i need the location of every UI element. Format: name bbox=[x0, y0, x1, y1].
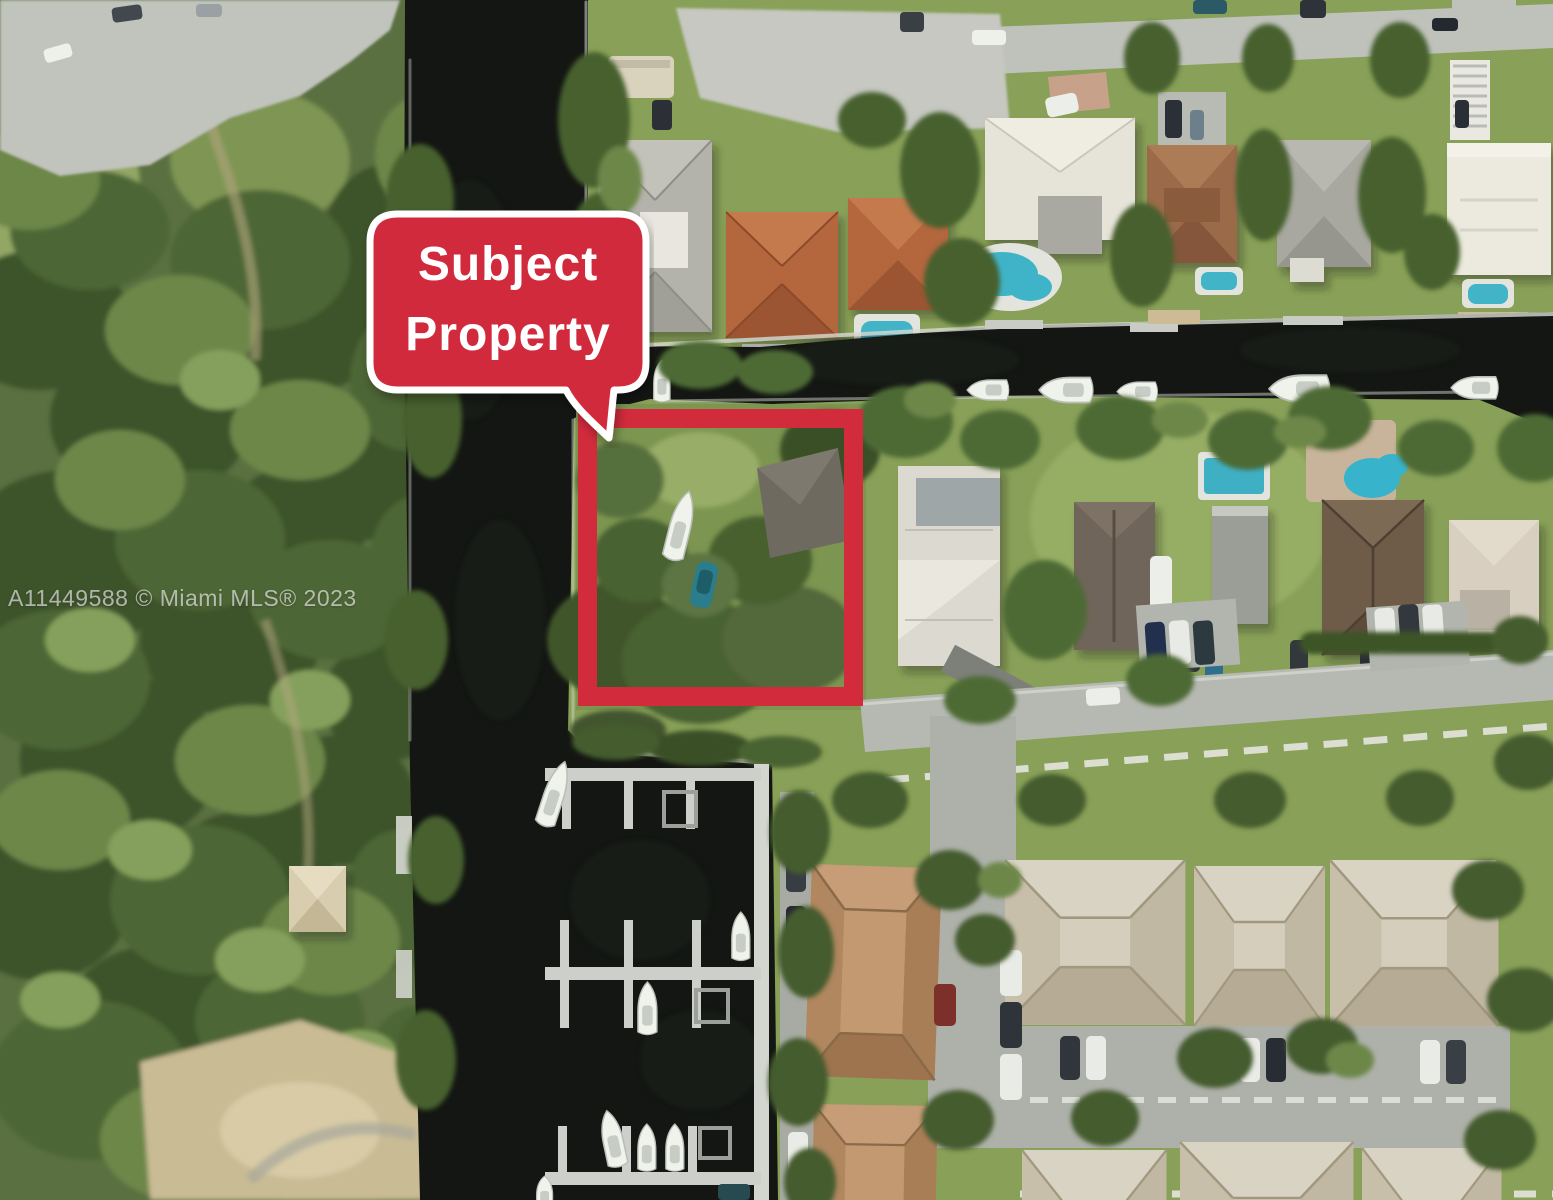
gazebo-hut bbox=[289, 866, 346, 932]
car bbox=[1455, 100, 1469, 128]
callout-line1: Subject bbox=[372, 230, 644, 300]
townhouse-roof bbox=[1005, 860, 1185, 1025]
house-cream bbox=[985, 118, 1135, 254]
house-gray2 bbox=[1277, 140, 1371, 282]
mls-watermark: A11449588 © Miami MLS® 2023 bbox=[8, 585, 357, 612]
car bbox=[196, 4, 222, 17]
callout-line2: Property bbox=[372, 300, 644, 370]
townhouse-roof bbox=[1194, 866, 1325, 1026]
townhouse-roof bbox=[1022, 1150, 1167, 1200]
boat-teal bbox=[718, 1184, 750, 1200]
car bbox=[652, 100, 672, 130]
car bbox=[1190, 110, 1204, 140]
subject-property-outline bbox=[578, 409, 863, 706]
car bbox=[1165, 100, 1182, 138]
aerial-listing-photo: Subject Property A11449588 © Miami MLS® … bbox=[0, 0, 1553, 1200]
house-terracotta-a bbox=[726, 212, 838, 338]
building-white bbox=[1447, 143, 1551, 275]
boat-port-trellis bbox=[1450, 60, 1490, 140]
house-white-L bbox=[898, 466, 1000, 666]
pool bbox=[1468, 284, 1508, 304]
pool bbox=[1201, 272, 1237, 290]
townhouse-roof bbox=[1180, 1142, 1353, 1200]
subject-property-callout: Subject Property bbox=[362, 206, 654, 448]
car bbox=[1085, 687, 1120, 706]
